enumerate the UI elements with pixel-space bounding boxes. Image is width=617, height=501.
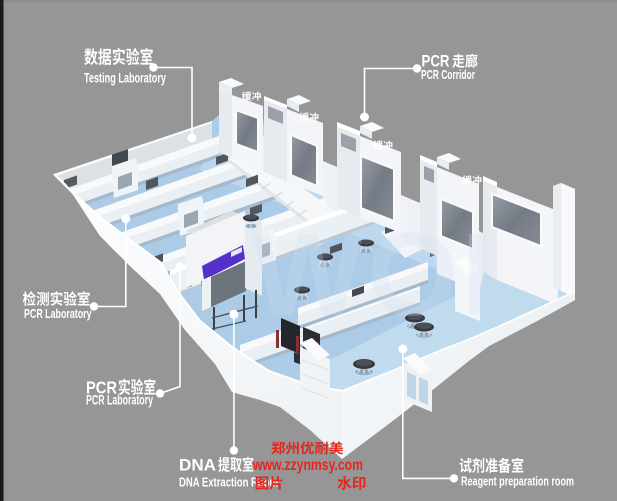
svg-text:www.zzynmsy.com: www.zzynmsy.com [252,457,363,474]
svg-text:PCR Laboratory: PCR Laboratory [24,306,92,321]
svg-text:WOL: WOL [252,209,536,341]
svg-text:Testing Laboratory: Testing Laboratory [84,70,166,86]
svg-text:DNA: DNA [179,457,216,475]
svg-text:PCR Corridor: PCR Corridor [421,68,475,82]
svg-text:PCR Laboratory: PCR Laboratory [86,393,153,408]
svg-text:Reagent preparation room: Reagent preparation room [461,474,574,489]
